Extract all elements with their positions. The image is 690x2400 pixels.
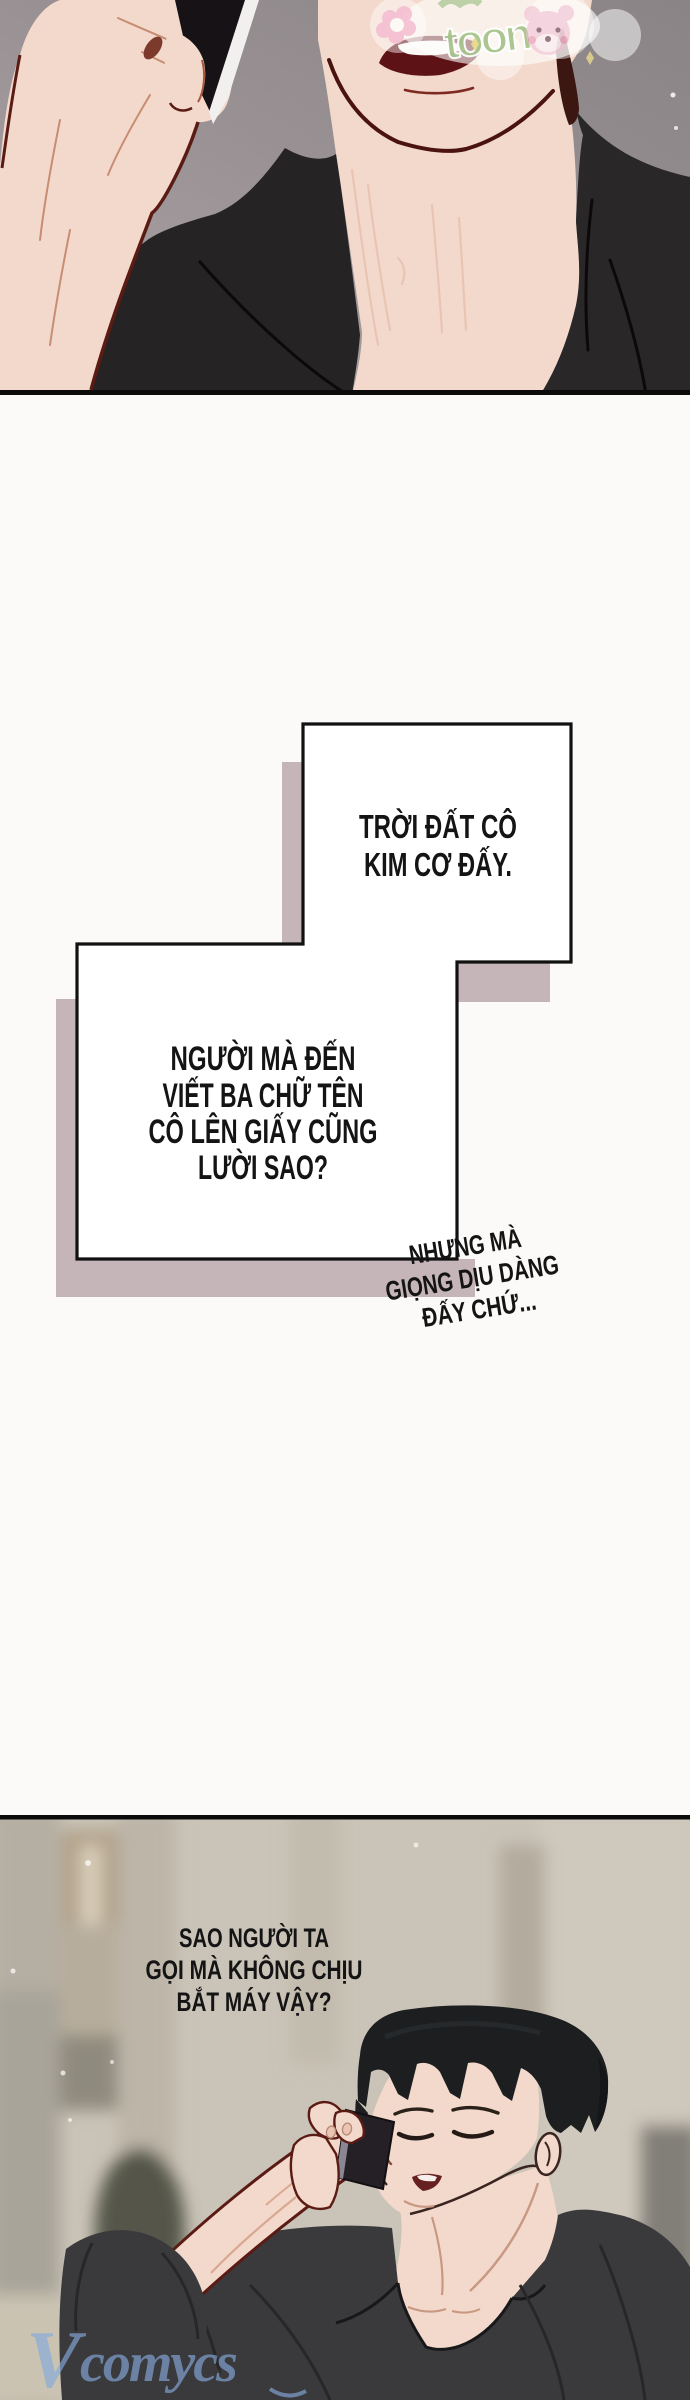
svg-text:V: V [26, 2314, 87, 2400]
svg-text:BẮT MÁY VẬY?: BẮT MÁY VẬY? [177, 1986, 332, 2017]
svg-text:SAO NGƯỜI TA: SAO NGƯỜI TA [179, 1922, 329, 1953]
svg-text:GỌI MÀ KHÔNG CHỊU: GỌI MÀ KHÔNG CHỊU [146, 1954, 363, 1985]
svg-text:LƯỜI SAO?: LƯỜI SAO? [198, 1149, 328, 1187]
svg-text:VIẾT BA CHỮ TÊN: VIẾT BA CHỮ TÊN [163, 1077, 364, 1115]
svg-text:TRỜI ĐẤT CÔ: TRỜI ĐẤT CÔ [359, 807, 517, 845]
svg-text:NGƯỜI MÀ ĐẾN: NGƯỜI MÀ ĐẾN [171, 1040, 356, 1078]
svg-text:CÔ LÊN GIẤY CŨNG: CÔ LÊN GIẤY CŨNG [149, 1112, 378, 1151]
svg-text:KIM CƠ ĐẤY.: KIM CƠ ĐẤY. [364, 846, 512, 883]
svg-text:comycs: comycs [80, 2332, 237, 2394]
svg-text:toon: toon [441, 8, 533, 69]
